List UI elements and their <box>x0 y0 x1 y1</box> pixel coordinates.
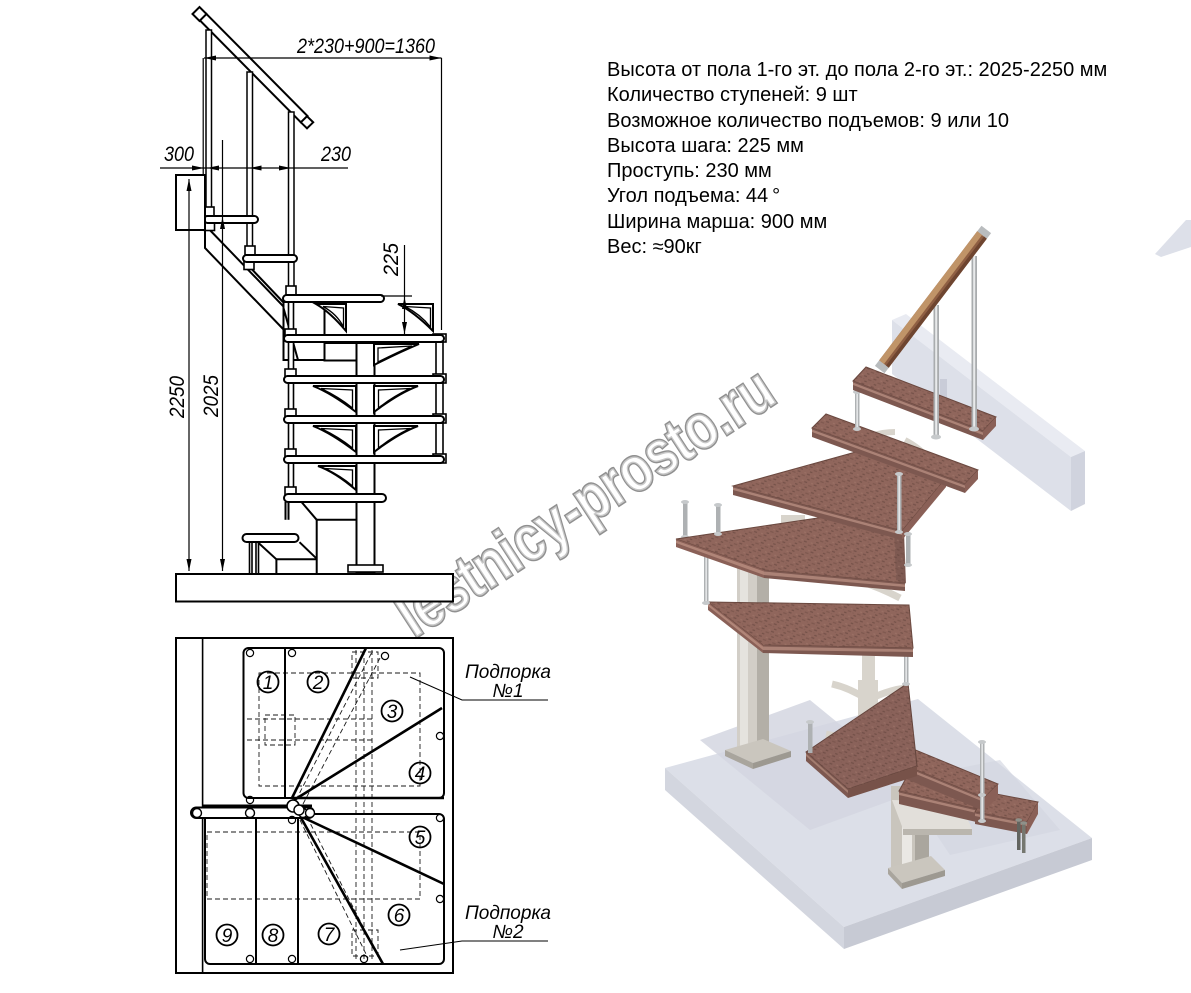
svg-text:4: 4 <box>415 764 426 785</box>
svg-text:7: 7 <box>324 925 336 946</box>
svg-text:300: 300 <box>164 143 194 166</box>
svg-text:230: 230 <box>320 143 351 166</box>
svg-text:9: 9 <box>222 926 233 947</box>
svg-text:Подпорка: Подпорка <box>465 903 551 924</box>
svg-text:2025: 2025 <box>200 375 223 418</box>
svg-text:5: 5 <box>415 828 426 849</box>
svg-text:№1: №1 <box>492 681 523 702</box>
svg-text:2250: 2250 <box>166 376 189 419</box>
svg-text:225: 225 <box>380 243 403 277</box>
svg-text:2*230+900=1360: 2*230+900=1360 <box>296 35 435 58</box>
svg-text:8: 8 <box>268 926 279 947</box>
svg-text:Подпорка: Подпорка <box>465 662 551 683</box>
svg-text:2: 2 <box>312 673 324 694</box>
svg-text:6: 6 <box>394 906 405 927</box>
svg-text:1: 1 <box>263 673 274 694</box>
svg-text:№2: №2 <box>492 922 524 943</box>
svg-text:3: 3 <box>387 702 398 723</box>
